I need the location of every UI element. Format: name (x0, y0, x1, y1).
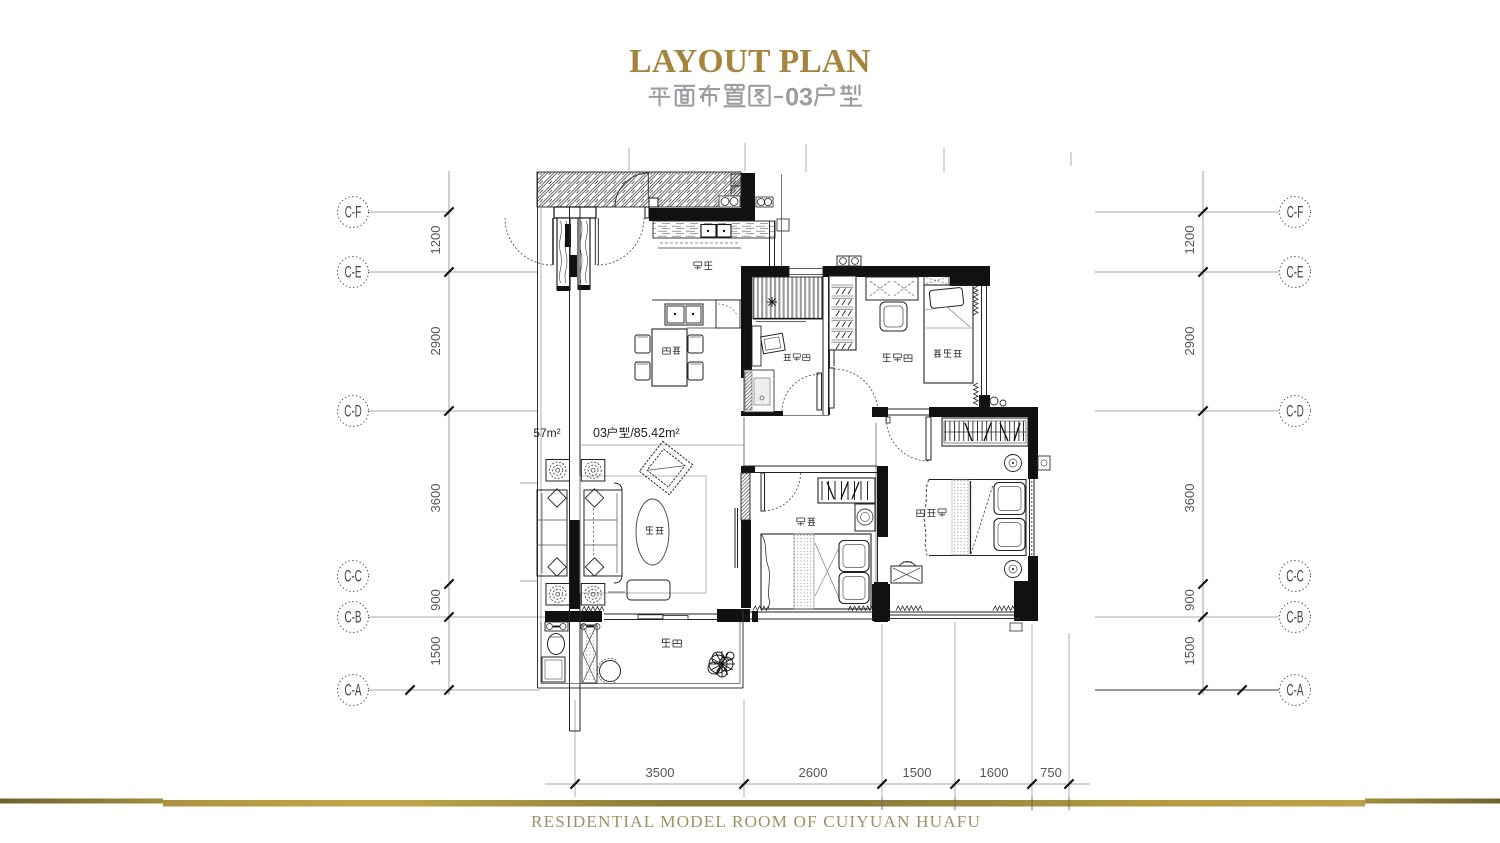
svg-text:C-E: C-E (344, 263, 361, 281)
svg-text:1600: 1600 (980, 765, 1009, 780)
svg-text:03: 03 (785, 84, 813, 112)
svg-text:LAYOUT PLAN: LAYOUT PLAN (629, 43, 870, 80)
svg-text:2900: 2900 (428, 327, 443, 356)
svg-text:C-A: C-A (344, 681, 362, 699)
svg-text:1200: 1200 (1182, 226, 1197, 255)
svg-text:2600: 2600 (799, 765, 828, 780)
svg-text:C-F: C-F (1287, 203, 1303, 221)
svg-text:900: 900 (428, 589, 443, 611)
svg-text:C-D: C-D (344, 402, 362, 420)
svg-text:3600: 3600 (428, 484, 443, 513)
svg-text:750: 750 (1040, 765, 1062, 780)
svg-text:C-C: C-C (344, 567, 362, 585)
svg-text:1200: 1200 (428, 226, 443, 255)
svg-text:C-F: C-F (345, 203, 361, 221)
svg-text:57m²: 57m² (533, 426, 560, 440)
svg-text:1500: 1500 (428, 637, 443, 666)
svg-text:2900: 2900 (1182, 327, 1197, 356)
svg-text:C-C: C-C (1286, 567, 1304, 585)
svg-text:900: 900 (1182, 589, 1197, 611)
svg-text:3500: 3500 (646, 765, 675, 780)
svg-text:C-D: C-D (1286, 402, 1304, 420)
svg-text:C-E: C-E (1286, 263, 1303, 281)
svg-text:RESIDENTIAL MODEL ROOM OF CUIY: RESIDENTIAL MODEL ROOM OF CUIYUAN HUAFU (531, 812, 981, 831)
svg-text:/85.42m²: /85.42m² (630, 426, 679, 440)
svg-text:3600: 3600 (1182, 484, 1197, 513)
svg-text:1500: 1500 (1182, 637, 1197, 666)
svg-text:C-B: C-B (344, 608, 361, 626)
svg-text:C-A: C-A (1286, 681, 1304, 699)
svg-text:1500: 1500 (903, 765, 932, 780)
svg-text:03: 03 (593, 426, 607, 440)
svg-text:C-B: C-B (1286, 608, 1303, 626)
